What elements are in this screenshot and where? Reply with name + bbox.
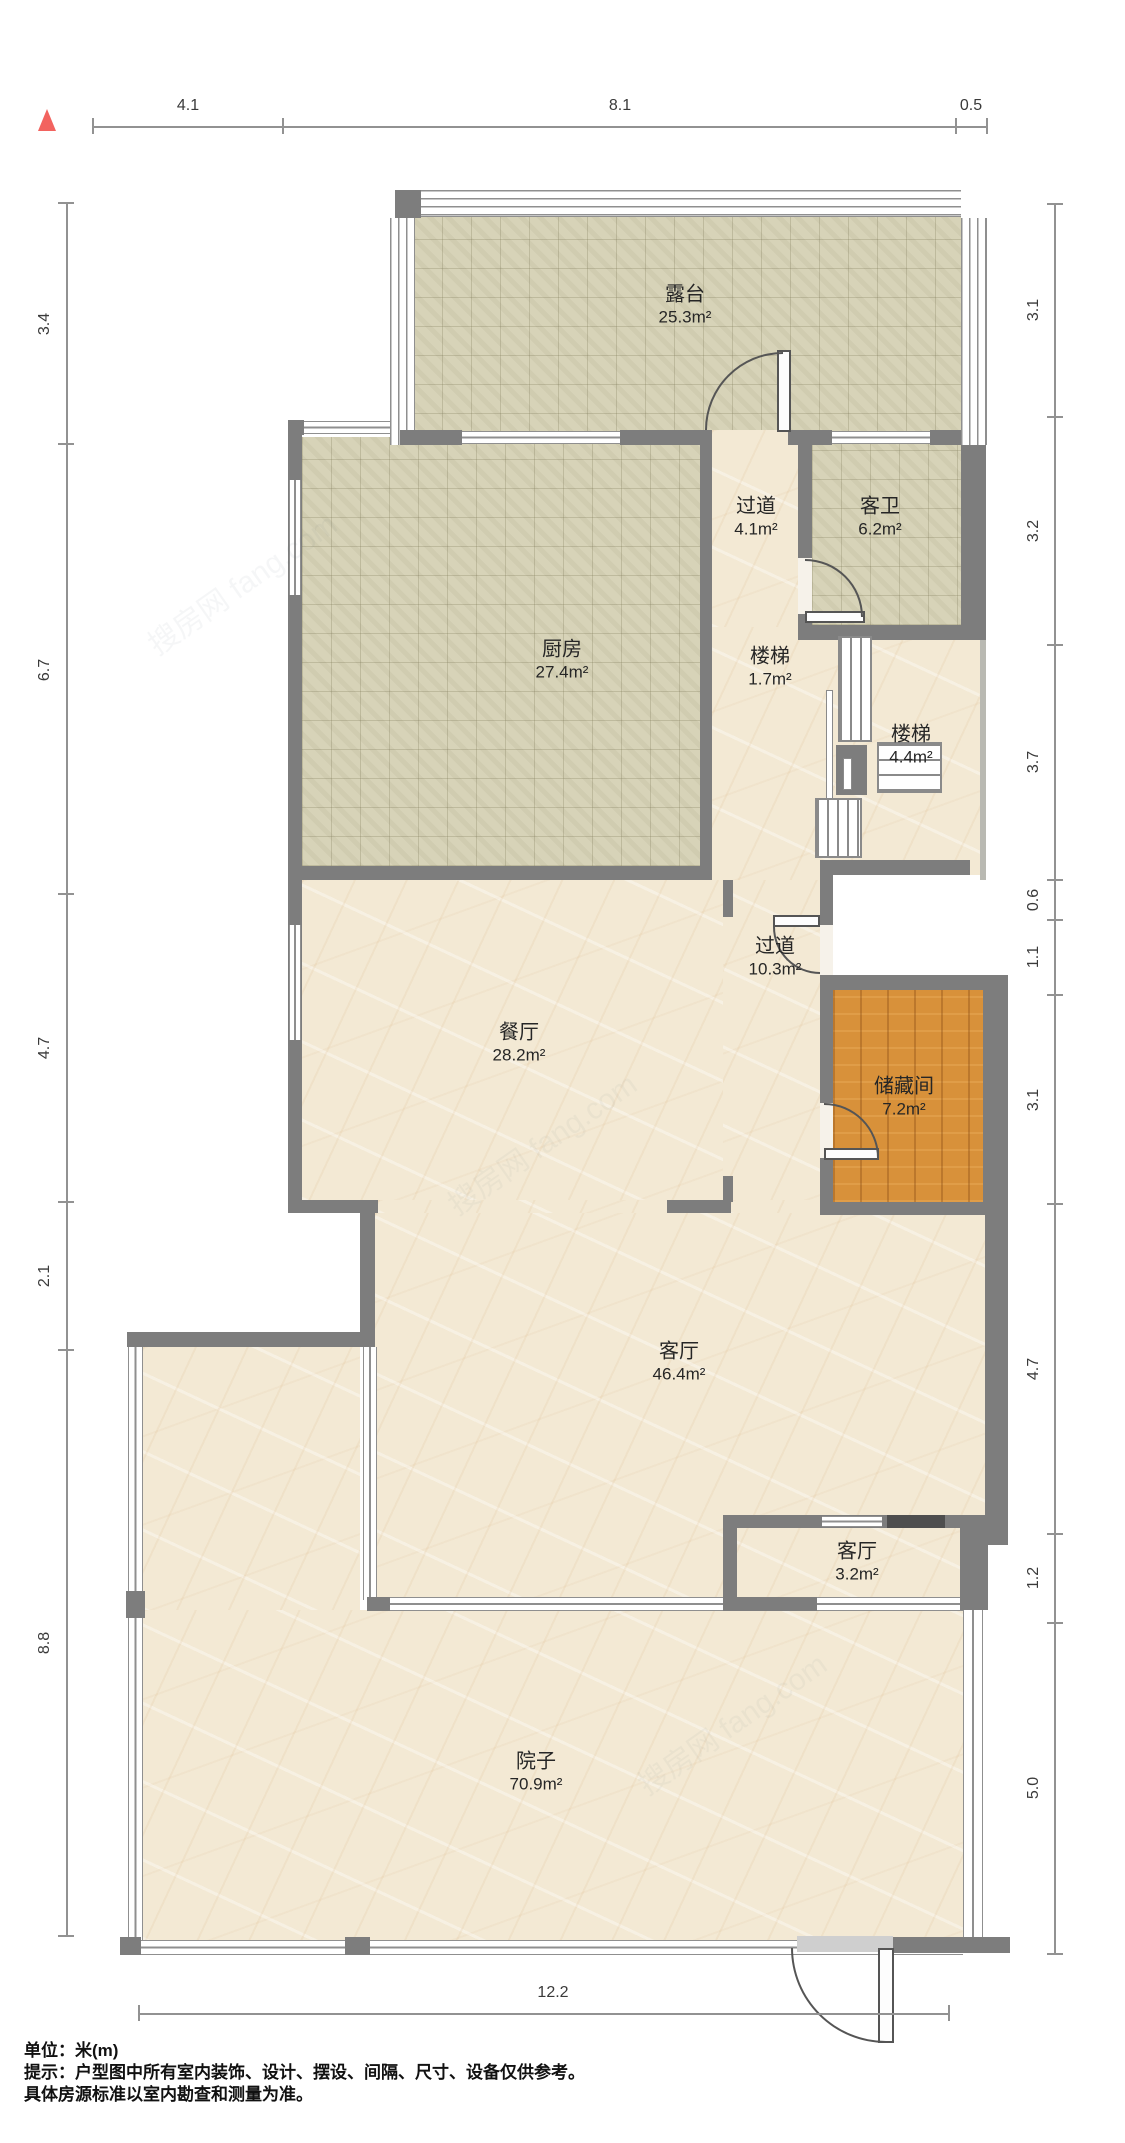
fence-post — [120, 1937, 141, 1955]
dim-tick — [282, 118, 284, 134]
wall — [620, 430, 712, 445]
dim-tick — [955, 118, 957, 134]
fence-post — [126, 1591, 145, 1618]
wall — [288, 1200, 378, 1213]
room-label-living-small: 客厅 3.2m² — [835, 1540, 878, 1585]
wall — [367, 1597, 390, 1611]
dim-tick — [58, 893, 74, 895]
dim-value: 12.2 — [537, 1984, 568, 2002]
dim-value: 1.2 — [1025, 1567, 1043, 1589]
yard-right-fence — [963, 1610, 983, 1940]
room-label-hallway-upper: 过道 4.1m² — [734, 495, 777, 540]
wall — [820, 1158, 833, 1205]
dim-tick — [986, 118, 988, 134]
wall — [820, 860, 833, 925]
hallway-door — [773, 915, 820, 927]
dim-value: 1.1 — [1025, 946, 1043, 968]
dim-tick — [1047, 644, 1063, 646]
wall — [127, 1332, 370, 1347]
dim-value: 0.6 — [1025, 889, 1043, 911]
dim-value: 2.1 — [36, 1265, 54, 1287]
room-name: 过道 — [734, 495, 777, 519]
kitchen-top-window — [304, 421, 390, 434]
dim-tick — [58, 1349, 74, 1351]
terrace-top-railing — [421, 190, 961, 217]
room-label-terrace: 露台 25.3m² — [659, 283, 712, 328]
dim-tick — [58, 1935, 74, 1937]
dim-tick — [948, 2005, 950, 2021]
room-area: 3.2m² — [835, 1564, 878, 1585]
room-name: 露台 — [659, 283, 712, 307]
dim-tick — [1047, 994, 1063, 996]
dim-tick — [1047, 416, 1063, 418]
dim-line-right — [1054, 204, 1056, 1954]
wall — [798, 625, 986, 640]
room-name: 楼梯 — [748, 645, 791, 669]
wall — [820, 975, 833, 1103]
dim-tick — [1047, 1533, 1063, 1535]
wall — [798, 443, 812, 558]
living-yard-window — [390, 1597, 723, 1611]
entry-door-swing — [791, 1948, 886, 2043]
room-label-hallway-lower: 过道 10.3m² — [749, 935, 802, 980]
dim-value: 0.5 — [960, 97, 982, 115]
dining-living-opening — [378, 1200, 667, 1213]
building-edge — [980, 640, 986, 880]
dim-value: 3.7 — [1025, 751, 1043, 773]
room-name: 客厅 — [653, 1340, 706, 1364]
dim-value: 3.1 — [1025, 299, 1043, 321]
dim-tick — [138, 2005, 140, 2021]
kitchen-terrace-window — [462, 431, 620, 444]
wall — [400, 430, 462, 445]
dim-value: 3.4 — [36, 313, 54, 335]
dim-value: 4.1 — [177, 97, 199, 115]
room-name: 储藏间 — [874, 1075, 934, 1099]
stair-rail — [826, 690, 833, 800]
north-arrow-icon — [38, 109, 56, 131]
dim-tick — [1047, 1622, 1063, 1624]
dim-value: 4.7 — [1025, 1358, 1043, 1380]
dim-value: 8.8 — [36, 1632, 54, 1654]
yard-left-fence — [128, 1347, 143, 1940]
room-area: 28.2m² — [493, 1045, 546, 1066]
dim-value: 3.1 — [1025, 1089, 1043, 1111]
terrace-left-railing — [390, 218, 415, 445]
room-area: 1.7m² — [748, 669, 791, 690]
stair-rail — [843, 758, 852, 790]
wall — [700, 443, 712, 880]
dim-tick — [92, 118, 94, 134]
unit-note: 单位：米(m) — [24, 2040, 585, 2062]
room-name: 楼梯 — [889, 723, 932, 747]
dim-line-left — [66, 203, 68, 1936]
dim-line-bottom — [139, 2013, 950, 2015]
wall — [961, 445, 986, 630]
wall — [820, 975, 1008, 990]
footer-notes: 单位：米(m) 提示：户型图中所有室内装饰、设计、摆设、间隔、尺寸、设备仅供参考… — [24, 2040, 585, 2106]
room-area: 27.4m² — [536, 662, 589, 683]
dim-tick — [58, 443, 74, 445]
small-room-bottom-window — [817, 1597, 965, 1611]
dim-line-top — [93, 126, 987, 128]
small-room-top-window — [822, 1516, 882, 1527]
wall — [983, 975, 1008, 1205]
wall — [893, 1937, 1010, 1953]
room-name: 客厅 — [835, 1540, 878, 1564]
wall — [820, 1202, 1008, 1215]
wall — [930, 430, 961, 445]
wall — [985, 1205, 1008, 1545]
dim-tick — [1047, 1953, 1063, 1955]
door-opening — [820, 925, 833, 975]
room-label-stairs-large: 楼梯 4.4m² — [889, 723, 932, 768]
wall — [723, 1597, 817, 1611]
terrace-floor — [413, 216, 961, 443]
room-area: 70.9m² — [510, 1774, 563, 1795]
wall — [723, 1176, 733, 1202]
yard-strip-floor — [143, 1347, 360, 1610]
dim-tick — [1047, 919, 1063, 921]
room-label-guest-bath: 客卫 6.2m² — [858, 495, 901, 540]
dim-value: 3.2 — [1025, 520, 1043, 542]
dim-tick — [1047, 879, 1063, 881]
room-label-dining: 餐厅 28.2m² — [493, 1021, 546, 1066]
dim-tick — [58, 202, 74, 204]
room-name: 餐厅 — [493, 1021, 546, 1045]
wall — [723, 880, 733, 917]
room-label-stairs-small: 楼梯 1.7m² — [748, 645, 791, 690]
wall — [288, 866, 712, 880]
dim-value: 5.0 — [1025, 1777, 1043, 1799]
room-area: 4.1m² — [734, 519, 777, 540]
room-area: 4.4m² — [889, 747, 932, 768]
kitchen-floor — [302, 437, 700, 866]
wall — [360, 1213, 375, 1347]
room-label-storage: 储藏间 7.2m² — [874, 1075, 934, 1120]
living-floor — [375, 1213, 985, 1610]
disclaimer-line2: 具体房源标准以室内勘查和测量为准。 — [24, 2084, 585, 2106]
wall — [820, 860, 970, 875]
living-west-window — [363, 1347, 377, 1600]
dim-value: 6.7 — [36, 659, 54, 681]
dining-left-window — [289, 925, 301, 1040]
stair-treads — [815, 798, 862, 858]
room-area: 25.3m² — [659, 307, 712, 328]
fence-post — [345, 1937, 370, 1955]
room-area: 10.3m² — [749, 959, 802, 980]
floorplan: 露台 25.3m² 过道 4.1m² 客卫 6.2m² 厨房 27.4m² 楼梯… — [0, 0, 1125, 2143]
room-label-living: 客厅 46.4m² — [653, 1340, 706, 1385]
room-label-yard: 院子 70.9m² — [510, 1750, 563, 1795]
wall — [395, 190, 421, 218]
stair-treads — [838, 636, 872, 742]
wall — [667, 1200, 731, 1213]
bath-terrace-window — [832, 431, 930, 444]
room-name: 厨房 — [536, 638, 589, 662]
room-name: 院子 — [510, 1750, 563, 1774]
room-area: 46.4m² — [653, 1364, 706, 1385]
room-name: 客卫 — [858, 495, 901, 519]
terrace-right-railing — [961, 218, 987, 445]
wall — [288, 420, 304, 435]
disclaimer-line1: 提示：户型图中所有室内装饰、设计、摆设、间隔、尺寸、设备仅供参考。 — [24, 2062, 585, 2084]
room-area: 6.2m² — [858, 519, 901, 540]
outside-notch — [833, 875, 1000, 975]
room-label-kitchen: 厨房 27.4m² — [536, 638, 589, 683]
dim-tick — [1047, 203, 1063, 205]
dim-value: 4.7 — [36, 1037, 54, 1059]
dim-tick — [58, 1201, 74, 1203]
wall-dark-segment — [887, 1515, 945, 1528]
wall — [723, 1515, 737, 1610]
dim-value: 8.1 — [609, 97, 631, 115]
wall — [960, 1515, 988, 1610]
room-area: 7.2m² — [874, 1099, 934, 1120]
dim-tick — [1047, 1203, 1063, 1205]
room-name: 过道 — [749, 935, 802, 959]
